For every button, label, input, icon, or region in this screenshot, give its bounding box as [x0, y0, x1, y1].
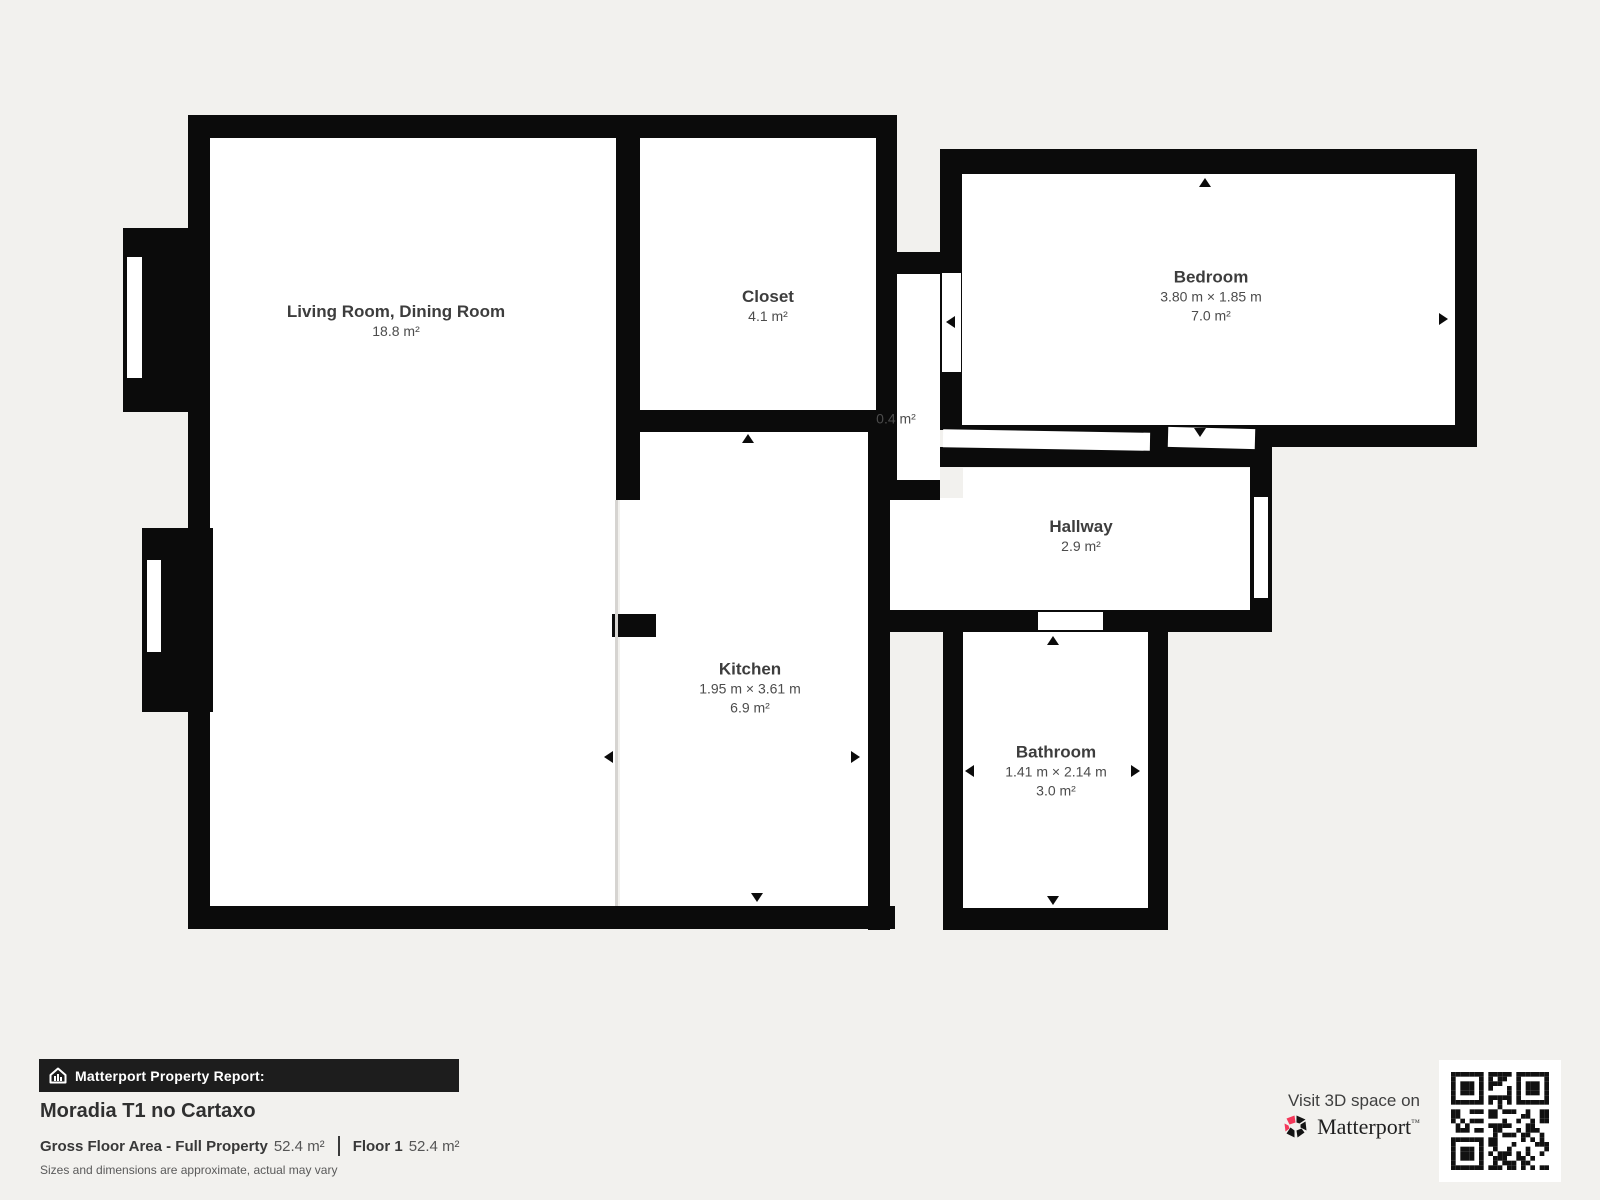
label-bedroom-area: 7.0 m² — [1160, 307, 1262, 326]
measure-arrow-bathroom-bottom — [1047, 896, 1059, 905]
matterport-wordmark: Matterport™ — [1317, 1114, 1420, 1140]
label-bedroom: Bedroom 3.80 m × 1.85 m 7.0 m² — [1160, 267, 1262, 326]
wall-bedroom-top — [940, 149, 1477, 174]
qr-modules — [1451, 1072, 1549, 1170]
wall-bathroom-bottom — [943, 908, 1168, 930]
wall-bedroom-right — [1455, 149, 1477, 447]
measure-arrow-bedroom-left — [946, 316, 955, 328]
floor-label: Floor 1 — [353, 1138, 403, 1155]
disclaimer-text: Sizes and dimensions are approximate, ac… — [40, 1163, 337, 1177]
label-kitchen: Kitchen 1.95 m × 3.61 m 6.9 m² — [699, 659, 801, 718]
wall-bottom-main — [188, 906, 895, 929]
measure-arrow-bathroom-left — [965, 765, 974, 777]
wall-bathroom-right — [1148, 610, 1168, 930]
wall-closet-bottom — [616, 410, 897, 432]
wall-bathroom-left — [943, 632, 963, 930]
label-hallway: Hallway 2.9 m² — [1049, 516, 1112, 556]
door-hallway-east — [1254, 497, 1268, 598]
label-bedroom-name: Bedroom — [1160, 267, 1262, 288]
wall-kitchen-stub — [612, 614, 656, 637]
wall-living-closet — [616, 115, 640, 500]
label-closet-area: 4.1 m² — [742, 307, 794, 326]
measure-arrow-bedroom-top — [1199, 178, 1211, 187]
wall-top-main — [188, 115, 897, 138]
wall-kitchen-right — [868, 430, 890, 930]
floor-value: 52.4 m² — [409, 1138, 460, 1155]
measure-arrow-kitchen-left — [604, 751, 613, 763]
measure-arrow-bedroom-right — [1439, 313, 1448, 325]
measure-arrow-bathroom-top — [1047, 636, 1059, 645]
label-living-name: Living Room, Dining Room — [287, 301, 505, 322]
qr-code — [1439, 1060, 1561, 1182]
trademark-mark: ™ — [1411, 1117, 1420, 1127]
door-bathroom — [1038, 612, 1103, 630]
label-hallway-name: Hallway — [1049, 516, 1112, 537]
visit-3d-text: Visit 3D space on — [1020, 1091, 1420, 1111]
label-closet-name: Closet — [742, 286, 794, 307]
wall-vestibule-bottom — [868, 480, 940, 500]
label-kitchen-area: 6.9 m² — [699, 699, 801, 718]
report-stats: Gross Floor Area - Full Property 52.4 m²… — [40, 1136, 460, 1156]
window-bay1 — [127, 257, 142, 378]
label-vestibule-area: 0.4 m² — [876, 410, 916, 429]
window-bay2 — [147, 560, 161, 652]
room-vestibule — [897, 274, 940, 480]
label-bathroom: Bathroom 1.41 m × 2.14 m 3.0 m² — [1005, 742, 1107, 801]
stats-divider — [338, 1136, 340, 1156]
label-closet: Closet 4.1 m² — [742, 286, 794, 326]
report-banner-text: Matterport Property Report: — [75, 1068, 265, 1084]
label-bedroom-dims: 3.80 m × 1.85 m — [1160, 288, 1262, 307]
matterport-floorplan-page: { "rooms": [ { "id": "living", "name": "… — [0, 0, 1600, 1200]
hallway-north-strip — [943, 429, 1150, 451]
room-hallway-upper — [963, 468, 1250, 498]
measure-arrow-kitchen-bottom — [751, 893, 763, 902]
label-bathroom-name: Bathroom — [1005, 742, 1107, 763]
room-closet — [638, 138, 877, 410]
label-living-area: 18.8 m² — [287, 322, 505, 341]
matterport-logo-icon — [1282, 1113, 1309, 1140]
boundary-living-kitchen — [615, 500, 618, 906]
property-name: Moradia T1 no Cartaxo — [40, 1100, 256, 1123]
wall-closet-right — [876, 118, 897, 432]
label-vestibule: 0.4 m² — [876, 410, 916, 429]
measure-arrow-bedroom-bottom — [1194, 428, 1206, 437]
floor-plan: Living Room, Dining Room 18.8 m² Closet … — [0, 0, 1600, 1000]
label-hallway-area: 2.9 m² — [1049, 537, 1112, 556]
label-bathroom-area: 3.0 m² — [1005, 782, 1107, 801]
label-bathroom-dims: 1.41 m × 2.14 m — [1005, 763, 1107, 782]
label-kitchen-name: Kitchen — [699, 659, 801, 680]
door-bedroom-south — [1168, 427, 1255, 449]
room-living — [210, 138, 616, 906]
matterport-link[interactable]: Matterport™ — [1020, 1113, 1420, 1140]
measure-arrow-bathroom-right — [1131, 765, 1140, 777]
label-kitchen-dims: 1.95 m × 3.61 m — [699, 680, 801, 699]
property-report-icon — [49, 1067, 67, 1089]
label-living: Living Room, Dining Room 18.8 m² — [287, 301, 505, 341]
wall-hallway-north — [940, 447, 1250, 467]
measure-arrow-kitchen-right — [851, 751, 860, 763]
gross-floor-area-label: Gross Floor Area - Full Property — [40, 1138, 268, 1155]
gross-floor-area-value: 52.4 m² — [274, 1138, 325, 1155]
report-banner: Matterport Property Report: — [39, 1059, 459, 1092]
measure-arrow-kitchen-top — [742, 434, 754, 443]
